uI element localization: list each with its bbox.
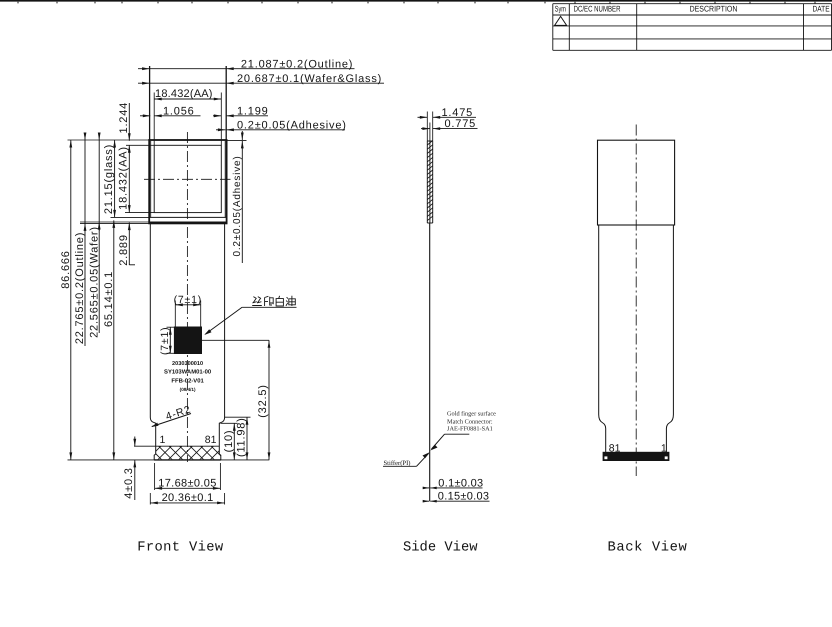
svg-text:(11.98): (11.98) bbox=[235, 417, 247, 457]
svg-text:Match Connector:: Match Connector: bbox=[447, 418, 493, 425]
svg-text:Sym: Sym bbox=[555, 5, 566, 14]
svg-text:2.889: 2.889 bbox=[118, 234, 130, 266]
svg-text:18.432(AA): 18.432(AA) bbox=[118, 146, 130, 210]
svg-text:0.2±0.05(Adhesive): 0.2±0.05(Adhesive) bbox=[237, 119, 347, 131]
svg-text:0.775: 0.775 bbox=[445, 118, 477, 130]
svg-text:(08/4/1): (08/4/1) bbox=[180, 387, 196, 392]
svg-text:JAE-FF0881-SA1: JAE-FF0881-SA1 bbox=[447, 426, 493, 433]
svg-text:DC/EC NUMBER: DC/EC NUMBER bbox=[574, 5, 621, 14]
svg-text:21.15(glass): 21.15(glass) bbox=[103, 144, 115, 214]
svg-text:1.199: 1.199 bbox=[237, 105, 269, 117]
svg-text:SY103WAM01-00: SY103WAM01-00 bbox=[164, 369, 212, 376]
svg-text:22.565±0.05(Wafer): 22.565±0.05(Wafer) bbox=[88, 226, 100, 338]
svg-text:(32.5): (32.5) bbox=[257, 384, 269, 418]
svg-text:2030300010: 2030300010 bbox=[172, 361, 203, 367]
svg-text:(7±1): (7±1) bbox=[174, 294, 202, 306]
svg-text:0.2±0.05(Adhesive): 0.2±0.05(Adhesive) bbox=[232, 155, 243, 256]
svg-text:1.475: 1.475 bbox=[442, 107, 474, 119]
svg-text:DATE: DATE bbox=[813, 5, 831, 14]
svg-text:Front View: Front View bbox=[137, 541, 224, 556]
svg-text:20.36±0.1: 20.36±0.1 bbox=[162, 492, 214, 504]
svg-text:0.1±0.03: 0.1±0.03 bbox=[438, 477, 483, 489]
svg-text:17.68±0.05: 17.68±0.05 bbox=[158, 478, 216, 490]
svg-text:Gold finger surface: Gold finger surface bbox=[447, 410, 496, 417]
svg-text:18.432(AA): 18.432(AA) bbox=[155, 88, 213, 100]
svg-text:Back View: Back View bbox=[608, 541, 688, 556]
svg-text:1: 1 bbox=[160, 434, 166, 446]
svg-text:(10): (10) bbox=[223, 430, 235, 453]
svg-text:22.765±0.2(Outline): 22.765±0.2(Outline) bbox=[74, 232, 86, 344]
svg-text:(7±1): (7±1) bbox=[159, 327, 171, 355]
svg-text:FFB-02-V01: FFB-02-V01 bbox=[171, 377, 204, 384]
svg-text:81: 81 bbox=[205, 434, 217, 446]
svg-text:DESCRIPTION: DESCRIPTION bbox=[690, 5, 738, 14]
svg-text:4±0.3: 4±0.3 bbox=[123, 467, 135, 498]
svg-text:86.666: 86.666 bbox=[60, 250, 72, 288]
svg-text:20.687±0.1(Wafer&Glass): 20.687±0.1(Wafer&Glass) bbox=[237, 73, 382, 85]
svg-text:21.087±0.2(Outline): 21.087±0.2(Outline) bbox=[241, 59, 353, 71]
svg-text:65.14±0.1: 65.14±0.1 bbox=[103, 271, 115, 327]
svg-text:1.244: 1.244 bbox=[118, 102, 130, 134]
svg-text:4-R2: 4-R2 bbox=[164, 403, 192, 422]
svg-text:1.056: 1.056 bbox=[163, 105, 195, 117]
svg-text:Side View: Side View bbox=[403, 541, 478, 556]
svg-text:0.15±0.03: 0.15±0.03 bbox=[438, 491, 490, 503]
